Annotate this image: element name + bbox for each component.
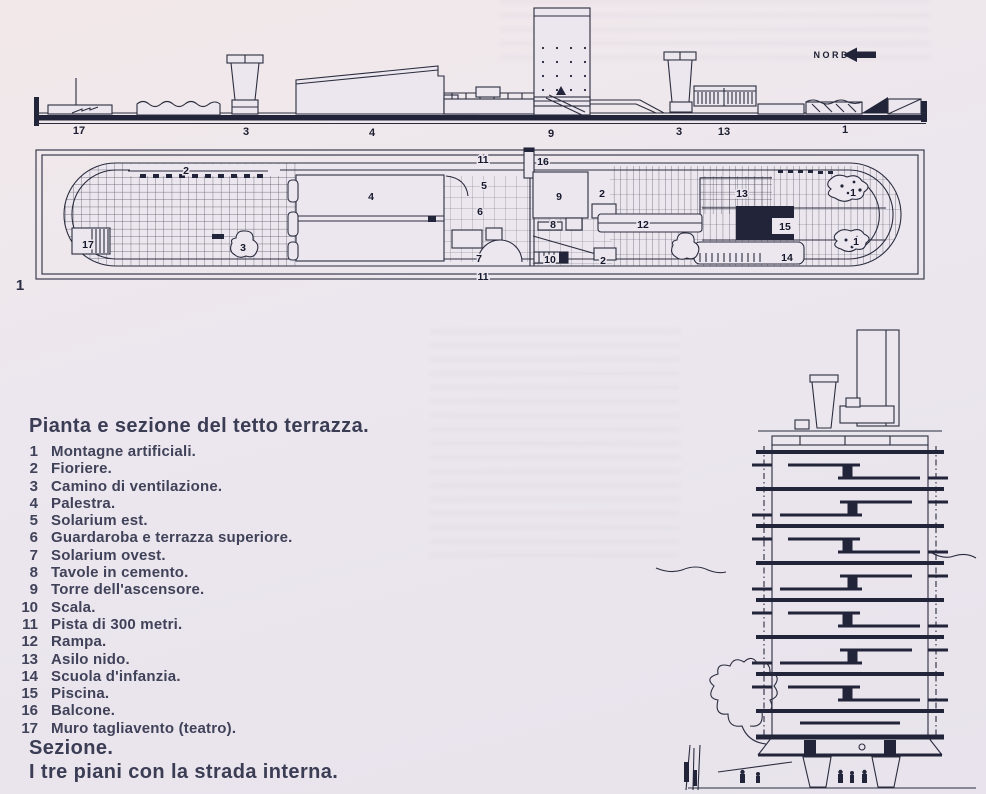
section-ventilation-chimney-right [664, 52, 696, 112]
legend-item: 14 Scuola d'infanzia. [0, 668, 460, 685]
legend-item: 3 Camino di ventilazione. [0, 478, 460, 495]
legend-item-label: Scala. [51, 599, 96, 616]
section-label-13: 13 [718, 126, 730, 138]
plan-label-13: 13 [736, 188, 748, 200]
plan-label-9: 9 [556, 191, 562, 203]
plan-label-14: 14 [781, 252, 793, 264]
plan-label-3: 3 [240, 242, 246, 254]
figure1-heading: 1 Pianta e sezione del tetto terrazza. [0, 415, 460, 438]
plan-label-15: 15 [779, 221, 791, 233]
legend-item: 4 Palestra. [0, 495, 460, 512]
section-ventilation-chimney-left [227, 55, 263, 114]
legend-item-label: Palestra. [51, 495, 115, 512]
legend-item: 5 Solarium est. [0, 512, 460, 529]
legend-item: 16 Balcone. [0, 702, 460, 719]
legend-item-number: 2 [0, 460, 38, 477]
legend-item-label: Tavole in cemento. [51, 564, 189, 581]
legend-item-number: 13 [0, 651, 38, 668]
plan-label-5: 5 [481, 180, 487, 192]
legend-item-label: Scuola d'infanzia. [51, 668, 181, 685]
plan-figure-number: 1 [16, 277, 24, 294]
section-elevator-tower [534, 8, 590, 115]
legend-item-label: Muro tagliavento (teatro). [51, 720, 236, 737]
plan-label-2: 2 [600, 255, 606, 267]
figure2-caption: 2 Sezione. [0, 737, 113, 760]
plan-label-7: 7 [476, 253, 482, 265]
figure3-caption: 3 I tre piani con la strada interna. [0, 761, 338, 784]
legend-item: 17 Muro tagliavento (teatro). [0, 720, 460, 737]
plan-label-1: 1 [850, 187, 856, 199]
section-windbreak-wall-17 [48, 78, 112, 114]
plan-label-16: 16 [537, 156, 549, 168]
legend-item-number: 9 [0, 581, 38, 598]
legend-item-number: 7 [0, 547, 38, 564]
legend-item-number: 12 [0, 633, 38, 650]
legend-item: 10 Scala. [0, 599, 460, 616]
xsec-roof-band [772, 436, 928, 445]
legend-item-label: Pista di 300 metri. [51, 616, 182, 633]
legend-item-label: Solarium ovest. [51, 547, 166, 564]
plan-gymnasium [288, 175, 444, 261]
roof-plan-drawing: 217341116569281271021315141111 1 [16, 148, 924, 294]
plan-label-2: 2 [183, 165, 189, 177]
legend-item: 12 Rampa. [0, 633, 460, 650]
legend-item-label: Rampa. [51, 633, 106, 650]
section-label-3: 3 [676, 126, 682, 138]
legend-item-label: Balcone. [51, 702, 115, 719]
figure2-number: 2 [0, 737, 9, 760]
xsec-roof-structures [795, 330, 899, 429]
legend-item: 7 Solarium ovest. [0, 547, 460, 564]
building-cross-section-drawing [656, 330, 976, 790]
book-page: { "figure1": { "number": "1", "title": "… [0, 0, 986, 794]
figure3-number: 3 [0, 761, 9, 784]
section-label-4: 4 [369, 127, 376, 139]
plan-label-2: 2 [599, 188, 605, 200]
legend-item: 6 Guardaroba e terrazza superiore. [0, 529, 460, 546]
plan-label-1: 1 [853, 236, 859, 248]
legend-item-number: 4 [0, 495, 38, 512]
legend-item-number: 8 [0, 564, 38, 581]
legend-item: 11 Pista di 300 metri. [0, 616, 460, 633]
section-deck-structures [444, 87, 534, 114]
legend-item-label: Asilo nido. [51, 651, 130, 668]
legend-item-label: Montagne artificiali. [51, 443, 196, 460]
legend-item: 9 Torre dell'ascensore. [0, 581, 460, 598]
legend-item: 8 Tavole in cemento. [0, 564, 460, 581]
section-left-end-wall [34, 97, 39, 126]
legend-item-label: Solarium est. [51, 512, 148, 529]
section-roof-slab [36, 115, 926, 121]
legend-item-number: 5 [0, 512, 38, 529]
section-ramp-line [590, 100, 664, 113]
north-indicator: NORD [814, 48, 877, 63]
section-label-9: 9 [548, 128, 554, 140]
figure1-title: Pianta e sezione del tetto terrazza. [29, 415, 369, 438]
legend-item-number: 14 [0, 668, 38, 685]
section-artificial-mountains-left [137, 102, 220, 116]
figure1-caption-block: 1 Pianta e sezione del tetto terrazza. 1… [0, 415, 460, 737]
people-figures [740, 770, 867, 783]
legend-item-number: 15 [0, 685, 38, 702]
tree-sketch [710, 658, 777, 744]
legend-item-number: 3 [0, 478, 38, 495]
legend-item: 15 Piscina. [0, 685, 460, 702]
plan-ramp [598, 214, 702, 232]
legend-item-number: 16 [0, 702, 38, 719]
legend-item-label: Piscina. [51, 685, 109, 702]
plan-label-17: 17 [82, 239, 94, 251]
plan-label-10: 10 [544, 254, 556, 266]
legend-item-number: 1 [0, 443, 38, 460]
xsec-duplex-interlock [752, 465, 948, 723]
section-number-labels: 173493131 [73, 124, 848, 140]
legend-item: 1 Montagne artificiali. [0, 443, 460, 460]
section-artificial-mountains-right [758, 97, 921, 114]
figure3-title: I tre piani con la strada interna. [29, 761, 338, 784]
section-label-3: 3 [243, 126, 249, 138]
plan-label-8: 8 [550, 219, 556, 231]
legend-item-label: Fioriere. [51, 460, 112, 477]
legend-item-number: 6 [0, 529, 38, 546]
plan-label-12: 12 [637, 219, 649, 231]
plan-label-4: 4 [368, 191, 374, 203]
plan-label-11: 11 [477, 271, 488, 283]
figure2-title: Sezione. [29, 737, 113, 760]
legend-item-label: Camino di ventilazione. [51, 478, 222, 495]
figure1-number: 1 [0, 415, 9, 438]
section-label-1: 1 [842, 124, 848, 136]
legend-item-label: Guardaroba e terrazza superiore. [51, 529, 293, 546]
roof-section-drawing: 173493131 NORD [34, 8, 927, 140]
legend-item-number: 10 [0, 599, 38, 616]
plan-label-11: 11 [477, 154, 488, 166]
figure1-legend-list: 1 Montagne artificiali. 2 Fioriere. 3 Ca… [0, 443, 460, 737]
section-nursery [694, 86, 756, 106]
legend-item-number: 11 [0, 616, 38, 633]
legend-item-label: Torre dell'ascensore. [51, 581, 204, 598]
section-label-17: 17 [73, 125, 85, 137]
legend-item: 2 Fioriere. [0, 460, 460, 477]
legend-item: 13 Asilo nido. [0, 651, 460, 668]
plan-label-6: 6 [477, 206, 483, 218]
north-arrow-icon [856, 52, 876, 59]
legend-item-number: 17 [0, 720, 38, 737]
